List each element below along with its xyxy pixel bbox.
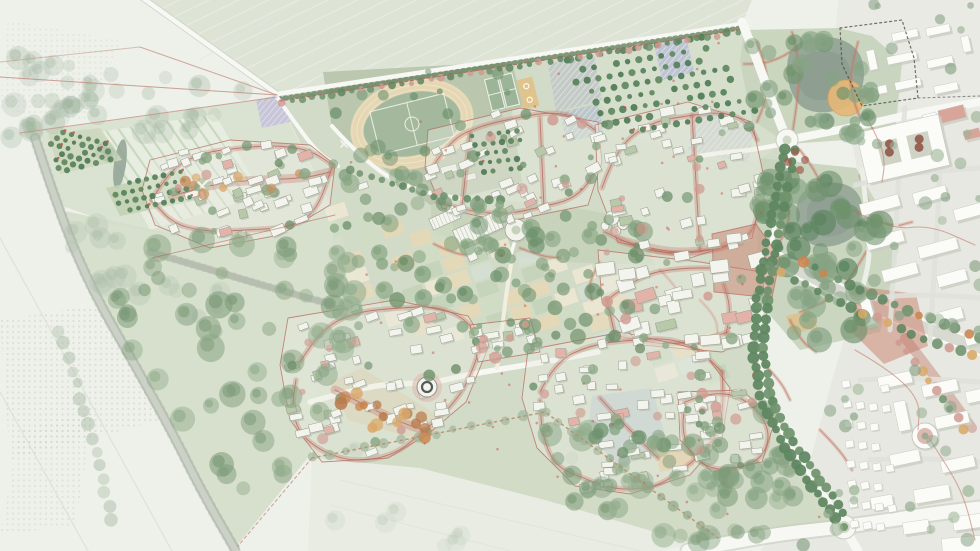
masterplan-canvas [0, 0, 980, 551]
masterplan-svg [0, 0, 980, 551]
